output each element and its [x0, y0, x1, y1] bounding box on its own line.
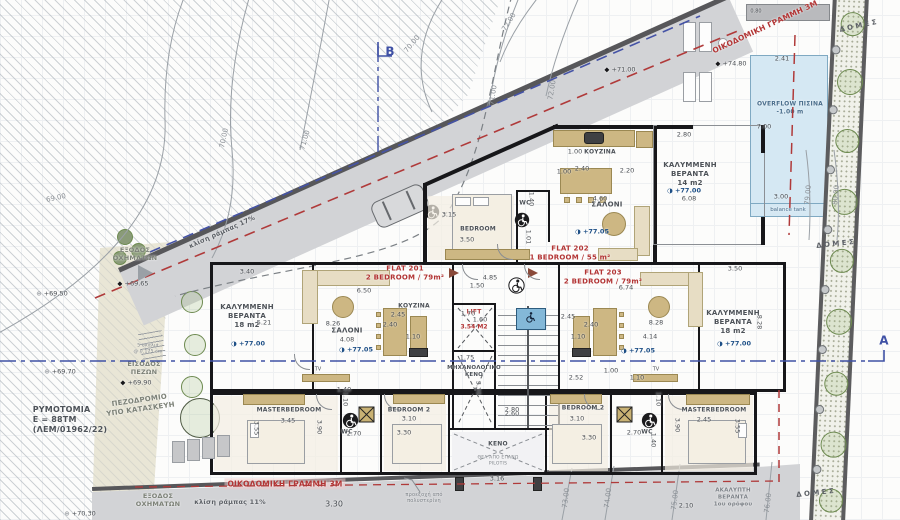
dim-label: 2.52 — [569, 374, 583, 381]
keno-subtext: ΘΕΑ ΑΠΟ ΕΠΑΝΩ PILOTIS — [477, 455, 518, 466]
rym-line3: (ΛΕΜ/01962/22) — [33, 425, 108, 434]
dim-label: 2.45 — [391, 311, 405, 318]
dim-label: 3.50 — [460, 236, 474, 243]
dim-label: 1.10 — [630, 374, 644, 381]
section-marker-a: A — [879, 334, 889, 349]
dim-label: 1.50 — [470, 282, 484, 289]
veranda-area: 14 m2 — [677, 178, 702, 186]
veranda-line1: ΚΑΛΥΜΜΕΝΗ — [220, 303, 274, 311]
dim-label: 3.16 — [490, 475, 504, 482]
dim-label: 6.08 — [682, 195, 696, 202]
wheelchair-icon — [342, 412, 359, 429]
exo-line2: ΟΧΗΜΑΤΩΝ — [136, 500, 180, 508]
spot-elevation: ◆ +69.65 — [117, 280, 148, 287]
partition — [452, 262, 454, 428]
skalia-line1: 5 σκαλιά — [137, 343, 159, 348]
partition — [380, 392, 382, 475]
dim-label: 4.60 — [593, 195, 607, 202]
parking-stall — [202, 437, 215, 459]
elev-value: +69.90 — [128, 378, 152, 386]
room-label-bedroom2-203: BEDROOM 2 — [562, 404, 605, 412]
pillow — [455, 197, 471, 206]
dim-label: 1.75 — [460, 354, 474, 361]
wardrobe — [243, 394, 305, 405]
wardrobe — [686, 394, 750, 405]
spot-elevation: ◑ +77.00 — [717, 340, 751, 347]
flat-201-name: FLAT 201 — [386, 264, 424, 272]
pool-name: OVERFLOW ΠΙΣΙΝΑ — [757, 101, 823, 108]
elev-value: +69.65 — [125, 279, 149, 287]
rymotomia-label: ΡΥΜΟΤΟΜΙΑ Ε = 88ΤΜ (ΛΕΜ/01962/22) — [33, 405, 108, 435]
dim-label: 4.14 — [643, 333, 657, 340]
veranda-202-wall — [657, 125, 693, 129]
veranda-line1: ΚΑΛΥΜΜΕΝΗ — [663, 161, 717, 169]
pilotis-column — [533, 477, 542, 491]
dim-label: 2.40 — [584, 321, 598, 328]
cooker — [572, 348, 591, 357]
wardrobe — [445, 249, 530, 260]
akal-line1: ΑΚΑΛΥΠΤΗ — [715, 488, 751, 494]
partition — [448, 428, 560, 430]
proex-line2: πολυστερίνη — [407, 498, 441, 504]
sink — [584, 132, 604, 144]
tv-label: TV — [315, 367, 321, 373]
lift-area-label: 3.54 Μ2 — [460, 325, 487, 332]
dim-label: 4.85 — [483, 274, 497, 281]
elev-value: +69.70 — [52, 367, 76, 375]
dim-label: 3.30 — [474, 381, 481, 395]
pool-label: OVERFLOW ΠΙΣΙΝΑ -1.00 m — [757, 101, 823, 116]
veranda-line2: ΒΕΡΑΝΤΑ — [714, 318, 752, 326]
klisi11-line2: ράμπας 11% — [219, 498, 266, 506]
flat-203-name: FLAT 203 — [584, 268, 622, 276]
dim-label: 1.10 — [406, 333, 420, 340]
flat-202-spec: 1 BEDROOM / 55 m² — [530, 253, 611, 261]
dim-label: 5.21 — [257, 319, 271, 326]
dim-label: 1.01 — [524, 230, 531, 244]
vehicle-exit-label-top: ΕΞΟΔΟΣ ΟΧΗΜΑΤΩΝ — [113, 246, 157, 262]
stool — [564, 197, 570, 203]
dim-label: 1.10 — [654, 392, 661, 406]
vehicle-exit-label-bottom: ΕΞΟΔΟΣ ΟΧΗΜΑΤΩΝ — [136, 492, 180, 508]
dim-label: 3.10 — [402, 415, 416, 422]
stool — [619, 334, 624, 339]
room-label-saloni-201: ΣΑΛΟΝΙ — [331, 327, 362, 336]
site-plan-canvas: FLAT 201 2 BEDROOM / 79m² FLAT 202 1 BED… — [0, 0, 900, 520]
dim-label: 2.70 — [347, 430, 361, 437]
dim-label: 2.80 — [677, 131, 691, 138]
partition — [452, 303, 496, 305]
dim-label: 2.40 — [383, 321, 397, 328]
dim-label: 1.00 — [557, 168, 571, 175]
elev-value: +69.50 — [44, 289, 68, 297]
partition — [610, 392, 612, 475]
dim-label: 3.50 — [728, 265, 742, 272]
parking-stall — [217, 435, 230, 457]
dim-label: 3.90 — [673, 418, 680, 432]
wheelchair-icon — [523, 310, 537, 324]
dim-label: 1.10 — [571, 333, 585, 340]
dim-label: 1.00 — [568, 148, 582, 155]
pool-depth: -1.00 m — [776, 108, 803, 115]
akal-line3: 1ου ορόφου — [714, 501, 753, 507]
elev-value: +77.05 — [629, 346, 655, 354]
dim-label: 6.74 — [619, 284, 633, 291]
dim-label: 8.26 — [326, 320, 340, 327]
balance-tank-label: balance tank — [770, 207, 806, 213]
dim-label: 2.80 — [505, 406, 519, 413]
exo-line1: ΕΞΟΔΟΣ — [120, 246, 150, 254]
partition — [548, 190, 550, 242]
elev-value: +71.00 — [612, 65, 636, 73]
flat-201-label: FLAT 201 2 BEDROOM / 79m² — [366, 264, 444, 282]
section-marker-b: B — [385, 45, 394, 60]
dim-label: 3.30 — [582, 434, 596, 441]
elev-value: +77.00 — [725, 339, 751, 347]
wall-left — [423, 183, 427, 265]
wardrobe — [393, 394, 445, 404]
dim-label: 3.45 — [281, 417, 295, 424]
dim-label: 1.00 — [604, 367, 618, 374]
spot-elevation: ◑ +77.00 — [231, 340, 265, 347]
dim-label: 2.41 — [775, 55, 789, 62]
dim-label: 3.15 — [442, 211, 456, 218]
dim-label: 3.90 — [315, 420, 322, 434]
shaft-icon — [358, 406, 375, 423]
room-label-veranda-top: ΚΑΛΥΜΜΕΝΗ ΒΕΡΑΝΤΑ 14 m2 — [663, 161, 717, 187]
stool — [576, 197, 582, 203]
dim-label: 2.45 — [697, 416, 711, 423]
dim-label: 3.00 — [774, 193, 788, 200]
spot-elevation: ◑ +77.05 — [339, 346, 373, 353]
dim-label: 3.30 — [325, 501, 343, 510]
stool — [619, 323, 624, 328]
dim-label: 1.60 — [473, 316, 487, 323]
stool — [376, 334, 381, 339]
room-label-mech-void: ΜΗΧΑΝΟΛΟΓΙΚΟ ΚΕΝΟ — [447, 365, 501, 379]
dim-label: 2.45 — [561, 313, 575, 320]
wheelchair-icon — [641, 412, 658, 429]
sofa — [688, 272, 703, 327]
stool — [376, 345, 381, 350]
room-label-veranda-right: ΚΑΛΥΜΜΕΝΗ ΒΕΡΑΝΤΑ 18 m2 — [706, 309, 760, 335]
rym-line2: Ε = 88ΤΜ — [33, 415, 77, 424]
tv-label: TV — [653, 367, 659, 373]
elev-value: +70.30 — [72, 509, 96, 517]
dim-label: 8.28 — [649, 319, 663, 326]
entry-arrow — [449, 268, 459, 278]
elev-value: +77.05 — [583, 227, 609, 235]
dim-label: 6.50 — [357, 287, 371, 294]
sofa — [302, 270, 318, 324]
dim-label: 2.20 — [620, 167, 634, 174]
klisi11-line1: κλίση — [194, 498, 216, 506]
exo-line1: ΕΞΟΔΟΣ — [143, 492, 173, 500]
bed — [552, 424, 602, 464]
dim-label: 3.55 — [733, 419, 740, 433]
veranda-202-wall — [761, 217, 765, 245]
eis-line1: ΕΙΣΟΔΟΣ — [127, 360, 160, 368]
pilotis-column — [455, 477, 464, 491]
wheelchair-icon — [508, 277, 525, 294]
dim-label: 3.40 — [240, 268, 254, 275]
dim-label: 2.40 — [575, 165, 589, 172]
veranda-area: 18 m2 — [720, 326, 745, 334]
elev-value: +77.00 — [239, 339, 265, 347]
dim-label: 1.40 — [527, 192, 534, 206]
dining-table — [648, 296, 670, 318]
veranda-line2: ΒΕΡΑΝΤΑ — [671, 170, 709, 178]
room-label-bedroom2-201: BEDROOM 2 — [388, 406, 431, 414]
partition — [452, 350, 496, 352]
keno-sub1: ΘΕΑ ΑΠΟ ΕΠΑΝΩ — [477, 455, 518, 460]
room-label-kouzina-202: ΚΟΥΖΙΝΑ — [584, 148, 616, 156]
flat-202-name: FLAT 202 — [551, 244, 589, 252]
room-label-master-201: MASTERBEDROOM — [257, 406, 322, 414]
dim-label: 2.70 — [627, 429, 641, 436]
wheelchair-icon — [514, 212, 530, 228]
spot-elevation: ⊕ +70.30 — [64, 510, 96, 517]
room-label-master-203: MASTERBEDROOM — [682, 406, 747, 414]
parking-stall — [172, 441, 185, 463]
dim-label: 1.40 — [649, 433, 656, 447]
room-label-bedroom-202: BEDROOM — [460, 225, 496, 233]
dim-label: 3.30 — [397, 429, 411, 436]
spot-elevation: ◆ +71.00 — [604, 66, 635, 73]
room-label-keno: ΚΕΝΟ — [488, 440, 508, 448]
keno-sub2: PILOTIS — [489, 461, 507, 466]
dim-label: 1.10 — [341, 392, 348, 406]
dim-label: 2.10 — [679, 502, 693, 509]
spot-elevation: ◆ +69.90 — [120, 379, 151, 386]
dim-label: 8.28 — [755, 315, 762, 329]
tv-unit — [302, 374, 350, 382]
shaft-icon — [616, 406, 633, 423]
partition — [448, 392, 450, 475]
spot-elevation: ◑ +77.05 — [575, 228, 609, 235]
building-line-label-bottom: ΟΙΚΟΔΟΜΙΚΗ ΓΡΑΜΜΗ 3Μ — [224, 478, 345, 489]
steps-note: 5 σκαλιά @ 0.175 cm — [133, 343, 162, 354]
building-line-red-diagonal — [95, 30, 740, 298]
stool — [376, 312, 381, 317]
dim-label: 7.00 — [757, 123, 771, 130]
spot-elevation: ◑ +77.05 — [621, 347, 655, 354]
spot-elevation: ⊕ +69.50 — [36, 290, 68, 297]
spot-elevation: ⊕ +69.70 — [44, 368, 76, 375]
dim-label: 0.80 — [750, 9, 761, 15]
uncovered-veranda-label: ΑΚΑΛΥΠΤΗ ΒΕΡΑΝΤΑ 1ου ορόφου — [714, 488, 753, 509]
mech-line2: ΚΕΝΟ — [465, 372, 483, 378]
stool — [619, 312, 624, 317]
room-label-kouzina-201: ΚΟΥΖΙΝΑ — [398, 302, 430, 310]
wall-top — [553, 125, 657, 129]
stool — [376, 323, 381, 328]
spot-elevation: ◆ +74.80 — [715, 60, 746, 67]
flat-202-label: FLAT 202 1 BEDROOM / 55 m² — [530, 244, 611, 262]
skalia-line2: @ 0.175 cm — [133, 349, 162, 354]
elev-value: +77.00 — [675, 186, 701, 194]
veranda-line1: ΚΑΛΥΜΜΕΝΗ — [706, 309, 760, 317]
exo-line2: ΟΧΗΜΑΤΩΝ — [113, 254, 157, 262]
rym-line1: ΡΥΜΟΤΟΜΙΑ — [33, 405, 91, 414]
mech-line1: ΜΗΧΑΝΟΛΟΓΙΚΟ — [447, 365, 501, 371]
elev-value: +77.05 — [347, 345, 373, 353]
parking-stall — [187, 439, 200, 461]
dim-label: 4.08 — [340, 336, 354, 343]
eis-line2: ΠΕΖΩΝ — [131, 368, 158, 376]
elev-value: +74.80 — [723, 59, 747, 67]
flat-201-spec: 2 BEDROOM / 79m² — [366, 273, 444, 281]
pillow — [473, 197, 489, 206]
dim-label: 3.10 — [570, 415, 584, 422]
cooker — [409, 348, 428, 357]
pedestrian-entry-label: ΕΙΣΟΔΟΣ ΠΕΖΩΝ — [127, 360, 160, 376]
dim-label: 3.55 — [252, 421, 259, 435]
projection-note: προεξοχή από πολυστερίνη — [405, 492, 442, 505]
kitchen-counter — [593, 308, 617, 356]
dining-table — [332, 296, 354, 318]
ramp-slope-11-label: κλίση ράμπας 11% — [194, 498, 266, 506]
fridge — [636, 131, 653, 148]
akal-line2: ΒΕΡΑΝΤΑ — [718, 495, 748, 501]
